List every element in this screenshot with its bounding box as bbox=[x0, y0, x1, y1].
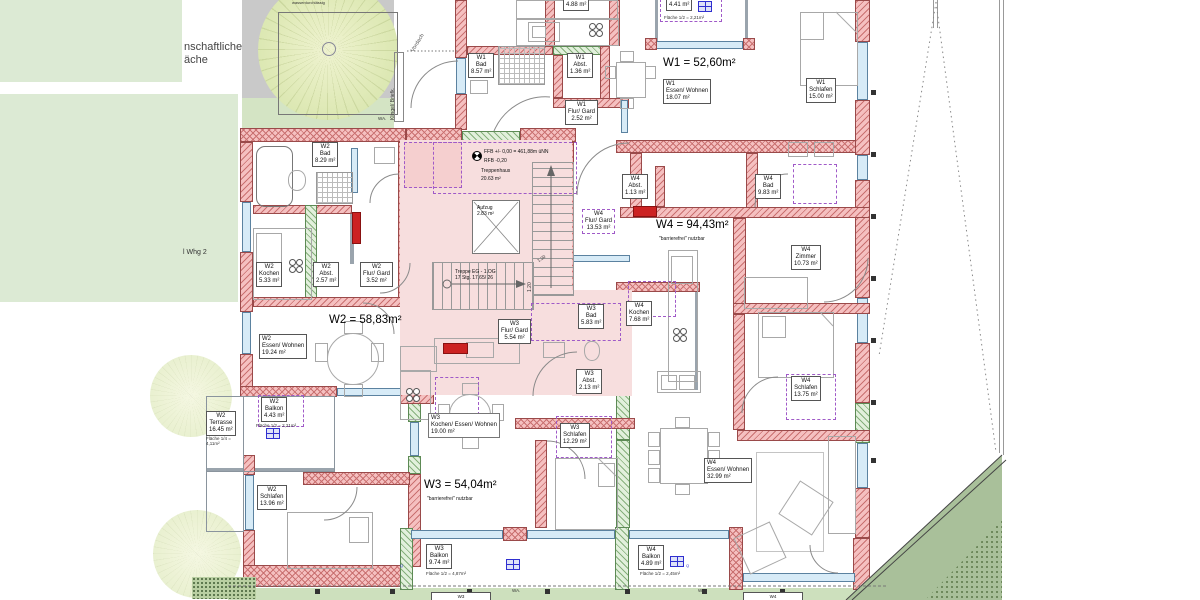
chair bbox=[371, 343, 384, 362]
balcony-half-area-w4: Fläche 1/2 = 2,45m² bbox=[640, 571, 680, 576]
hob-ring bbox=[406, 395, 413, 402]
balcony-half-area-w3: Fläche 1/2 = 4,87m² bbox=[426, 571, 466, 576]
hob-ring bbox=[413, 395, 420, 402]
canopy-label: Vordach bbox=[410, 33, 426, 53]
room-label-w4-essen: W4 Essen/ Wohnen 32.99 m² bbox=[704, 458, 752, 483]
wall-insulated bbox=[615, 527, 629, 590]
room-label-w2-essen: W2 Essen/ Wohnen 19.24 m² bbox=[259, 334, 307, 359]
hob-ring bbox=[673, 335, 680, 342]
drain-mark: Q bbox=[400, 563, 403, 568]
garden-label: l Whg 2 bbox=[183, 249, 207, 256]
window bbox=[629, 530, 729, 539]
room-label-w4-balkon: W4 Balkon 4.89 m² bbox=[638, 545, 664, 570]
wall bbox=[855, 180, 870, 298]
window bbox=[242, 312, 251, 354]
hob-ring bbox=[596, 23, 603, 30]
sink bbox=[671, 256, 693, 284]
room-label-w3-schlafen: W3 Schlafen 12.29 m² bbox=[560, 423, 590, 448]
wa-label: WA. bbox=[378, 116, 386, 121]
chair bbox=[605, 66, 616, 79]
shrub-patch bbox=[192, 577, 256, 599]
hob-ring bbox=[596, 30, 603, 37]
chair bbox=[708, 432, 720, 447]
boundary-dotted bbox=[936, 2, 996, 452]
floor-plan: Q Q Kochen 4.88 m² W1 Bad 8.57 m² W1 Abs… bbox=[0, 0, 1200, 600]
toilet bbox=[584, 341, 600, 361]
room-label-w2-flur: W2 Flur/ Gard 3.52 m² bbox=[360, 262, 393, 287]
chair bbox=[675, 417, 690, 428]
pillow bbox=[762, 316, 786, 338]
toilet bbox=[288, 170, 306, 191]
wall bbox=[503, 527, 527, 541]
room-label-w1-schlafen: W1 Schlafen 15.00 m² bbox=[806, 78, 836, 103]
balcony-rail bbox=[655, 0, 658, 41]
window bbox=[456, 58, 466, 94]
post bbox=[871, 338, 876, 343]
wall bbox=[240, 354, 253, 388]
wall bbox=[553, 55, 563, 98]
wall bbox=[240, 128, 406, 142]
hob-ring bbox=[589, 30, 596, 37]
window bbox=[242, 202, 251, 252]
apartment-total-w2: W2 = 58,83m² bbox=[329, 314, 402, 326]
washbasin bbox=[470, 80, 488, 94]
room-label-w1-essen: W1 Essen/ Wohnen 18.07 m² bbox=[663, 79, 711, 104]
boundary-dotted bbox=[879, 2, 936, 356]
bottom-cut-label-w3: W3 bbox=[431, 592, 491, 600]
hob-ring bbox=[289, 259, 296, 266]
drain-grid-icon bbox=[506, 559, 520, 570]
room-label-w3-flur: W3 Flur/ Gard 5.54 m² bbox=[498, 319, 531, 344]
room-label-w4-abst: W4 Abst. 1.13 m² bbox=[622, 174, 648, 199]
stair-run-label: Treppe EG - 1.OG 17 Stg. 17,65/ 26 bbox=[455, 269, 496, 282]
post bbox=[871, 458, 876, 463]
chair bbox=[344, 384, 363, 397]
chair bbox=[315, 343, 328, 362]
stairwell-name: Treppenhaus bbox=[481, 168, 510, 174]
drain-grid-icon bbox=[266, 428, 280, 439]
sink-bowl bbox=[532, 26, 546, 38]
room-label-w4-zimmer: W4 Zimmer 10.73 m² bbox=[791, 245, 821, 270]
kitchen-counter-w3 bbox=[400, 346, 437, 372]
wall bbox=[303, 472, 410, 485]
wall bbox=[733, 314, 745, 430]
room-label-w1-flur: W1 Flur/ Gard 2.52 m² bbox=[565, 100, 598, 125]
site-area-label: nschaftliche äche bbox=[184, 41, 242, 67]
room-label-w2-kochen: W2 Kochen 5.33 m² bbox=[256, 262, 282, 287]
window bbox=[857, 155, 868, 180]
shower-w1 bbox=[498, 46, 545, 85]
post bbox=[871, 90, 876, 95]
pillow bbox=[349, 517, 369, 543]
tree-trunk bbox=[322, 42, 336, 56]
room-label-w1-abst: W1 Abst. 1.36 m² bbox=[567, 53, 593, 78]
hob-ring bbox=[673, 328, 680, 335]
hob-ring bbox=[406, 388, 413, 395]
post bbox=[315, 589, 320, 594]
tree-pit-outline bbox=[278, 12, 398, 115]
apartment-total-w1: W1 = 52,60m² bbox=[663, 57, 736, 69]
chair bbox=[620, 98, 634, 109]
wall bbox=[455, 94, 467, 130]
room-label-w1-kochen: Kochen 4.88 m² bbox=[563, 0, 589, 11]
room-label-w3-bad: W3 Bad 5.83 m² bbox=[578, 304, 604, 329]
wa-label: WA. bbox=[512, 588, 520, 593]
room-label-w2-abst: W2 Abst. 2.57 m² bbox=[313, 262, 339, 287]
window bbox=[857, 42, 868, 100]
washbasin bbox=[543, 342, 565, 358]
elevator-label: Aufzug 2.83 m² bbox=[477, 205, 494, 218]
chair bbox=[620, 51, 634, 62]
post bbox=[625, 589, 630, 594]
post bbox=[390, 589, 395, 594]
bell-label: Klingel/ Briefk. bbox=[390, 88, 396, 120]
dashed-zone bbox=[531, 303, 621, 341]
wall bbox=[535, 440, 547, 528]
drain-grid-icon bbox=[670, 556, 684, 567]
site-green-band bbox=[0, 94, 238, 302]
radiator bbox=[352, 212, 361, 244]
wall bbox=[240, 252, 253, 312]
wall bbox=[243, 530, 255, 567]
dining-table-w1 bbox=[616, 62, 646, 98]
room-label-w3-kochen: W3 Kochen/ Essen/ Wohnen 19.00 m² bbox=[428, 413, 500, 438]
stair-dimension: 1.20 bbox=[527, 282, 533, 292]
radiator bbox=[633, 206, 657, 217]
window bbox=[573, 255, 630, 262]
hob-ring bbox=[680, 328, 687, 335]
window bbox=[410, 422, 419, 456]
room-label-w3-balkon: W3 Balkon 9.74 m² bbox=[426, 544, 452, 569]
post bbox=[545, 589, 550, 594]
room-label-w4-flur: W4 Flur/ Gard 13.53 m² bbox=[582, 209, 615, 234]
balcony-rail bbox=[745, 0, 748, 41]
post bbox=[871, 400, 876, 405]
pillow bbox=[800, 12, 824, 40]
wall bbox=[855, 100, 870, 155]
stove-mark bbox=[443, 343, 468, 354]
chair bbox=[675, 484, 690, 495]
permeable-label: wasserdurchlässig bbox=[292, 0, 325, 5]
sofa bbox=[828, 436, 856, 534]
wall bbox=[855, 488, 870, 538]
hob-ring bbox=[413, 388, 420, 395]
site-green-dots bbox=[925, 520, 1002, 600]
washbasin bbox=[814, 142, 834, 157]
window bbox=[527, 530, 615, 539]
dashed-zone bbox=[435, 377, 479, 415]
window bbox=[411, 530, 503, 539]
room-label-w2-schlafen: W2 Schlafen 13.96 m² bbox=[257, 485, 287, 510]
site-green-band-top bbox=[0, 0, 182, 82]
wa-label: WA. bbox=[698, 588, 706, 593]
room-label-w1-balkon: Balkon 4.41 m² bbox=[666, 0, 692, 11]
wall bbox=[455, 0, 467, 58]
stairwell-area: 20.63 m² bbox=[481, 176, 501, 182]
wall bbox=[240, 142, 253, 202]
apartment-total-w4: W4 = 94,43m² bbox=[656, 219, 729, 231]
post bbox=[871, 214, 876, 219]
sink bbox=[466, 342, 494, 358]
dining-table-w4 bbox=[660, 428, 708, 484]
dashed-zone bbox=[793, 164, 837, 204]
apartment-note-w4: "barrierefrei" nutzbar bbox=[659, 236, 705, 242]
level-rfb: RFB -0,20 bbox=[484, 158, 507, 164]
hob-ring bbox=[296, 266, 303, 273]
wall bbox=[655, 166, 665, 207]
room-label-w4-schlafen: W4 Schlafen 13.75 m² bbox=[791, 376, 821, 401]
post bbox=[871, 276, 876, 281]
bottom-cut-label-w4: W4 bbox=[743, 592, 803, 600]
level-ffb: FFB +/- 0,00 = 461,88m üNN bbox=[484, 149, 548, 155]
hob-ring bbox=[289, 266, 296, 273]
room-label-w3-abst: W3 Abst. 2.13 m² bbox=[576, 369, 602, 394]
wall bbox=[853, 538, 870, 590]
cabinet bbox=[679, 375, 695, 390]
washbasin bbox=[788, 142, 808, 157]
bed bbox=[744, 277, 808, 309]
drain-grid-icon bbox=[698, 1, 712, 12]
cabinet bbox=[661, 375, 677, 390]
room-label-w4-bad: W4 Bad 9.83 m² bbox=[755, 174, 781, 199]
room-label-w4-kochen: W4 Kochen 7.68 m² bbox=[626, 301, 652, 326]
wall bbox=[645, 38, 657, 50]
shower-w2 bbox=[316, 172, 353, 204]
drain-mark: Q bbox=[686, 563, 689, 568]
window bbox=[655, 41, 743, 49]
room-label-w2-bad: W2 Bad 8.29 m² bbox=[312, 142, 338, 167]
apartment-total-w3: W3 = 54,04m² bbox=[424, 479, 497, 491]
chair bbox=[462, 437, 479, 449]
pillow bbox=[598, 463, 615, 487]
window bbox=[857, 443, 868, 488]
washbasin bbox=[374, 147, 395, 164]
wall bbox=[855, 343, 870, 403]
hob-ring bbox=[680, 335, 687, 342]
hob-ring bbox=[589, 23, 596, 30]
chair bbox=[645, 66, 656, 79]
wall bbox=[743, 38, 755, 50]
window bbox=[245, 475, 254, 530]
post bbox=[871, 152, 876, 157]
room-label-w1-bad: W1 Bad 8.57 m² bbox=[468, 53, 494, 78]
balcony-half-area-w1: Fläche 1/2 = 2,21m² bbox=[664, 15, 704, 20]
room-label-w2-balkon: W2 Balkon 4.43 m² bbox=[261, 397, 287, 422]
terrace-quarter-area-w2: Fläche 1/4 = 4,11m² bbox=[206, 436, 240, 446]
wall-insulated bbox=[616, 440, 630, 528]
room-label-w2-terrasse: W2 Terrasse 16.45 m² bbox=[206, 411, 236, 436]
window bbox=[743, 573, 855, 582]
chair bbox=[648, 432, 660, 447]
wall bbox=[620, 207, 870, 218]
apartment-note-w3: "barrierefrei" nutzbar bbox=[427, 496, 473, 502]
hob-ring bbox=[296, 259, 303, 266]
chair bbox=[648, 468, 660, 483]
chair bbox=[648, 450, 660, 465]
